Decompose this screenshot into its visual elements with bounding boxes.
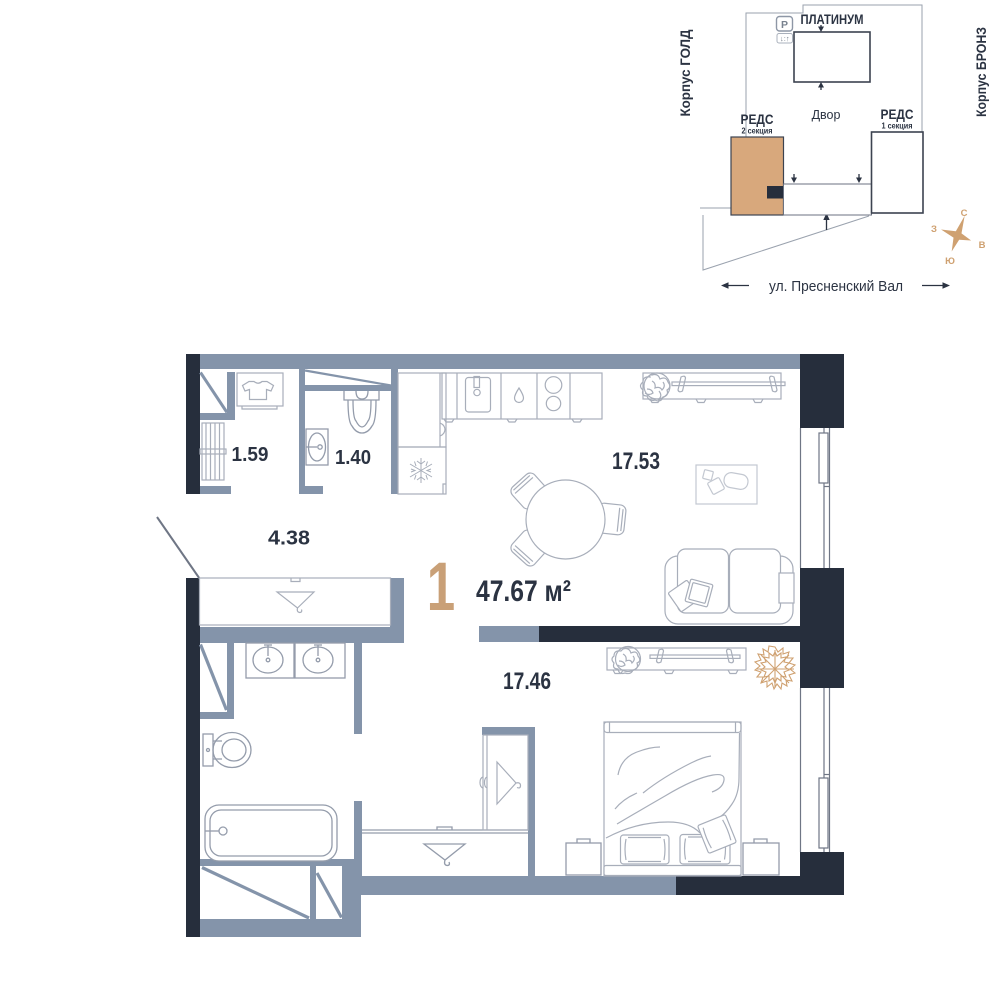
svg-text:4.38: 4.38 [268,528,310,550]
svg-text:P: P [781,19,788,31]
svg-text:47.67 м²: 47.67 м² [476,575,571,608]
svg-text:1.40: 1.40 [335,447,371,469]
svg-text:З: З [931,224,937,235]
svg-text:С: С [961,208,968,219]
svg-text:РЕДС: РЕДС [741,111,774,127]
svg-text:↓:↑: ↓:↑ [780,34,790,43]
svg-text:В: В [979,240,986,251]
svg-text:1: 1 [427,547,455,624]
svg-text:Корпус ГОЛД: Корпус ГОЛД [678,29,693,116]
svg-text:1.59: 1.59 [232,444,269,466]
svg-text:Корпус БРОНЗ: Корпус БРОНЗ [974,27,989,117]
svg-text:ул. Пресненский Вал: ул. Пресненский Вал [769,278,903,295]
svg-text:РЕДС: РЕДС [881,106,914,122]
svg-text:ПЛАТИНУМ: ПЛАТИНУМ [801,12,864,27]
svg-text:1 секция: 1 секция [882,122,913,131]
svg-text:17.53: 17.53 [612,448,660,475]
svg-text:Ю: Ю [945,256,955,267]
svg-text:17.46: 17.46 [503,668,551,695]
svg-text:Двор: Двор [812,108,841,122]
svg-text:2 секция: 2 секция [742,127,773,136]
